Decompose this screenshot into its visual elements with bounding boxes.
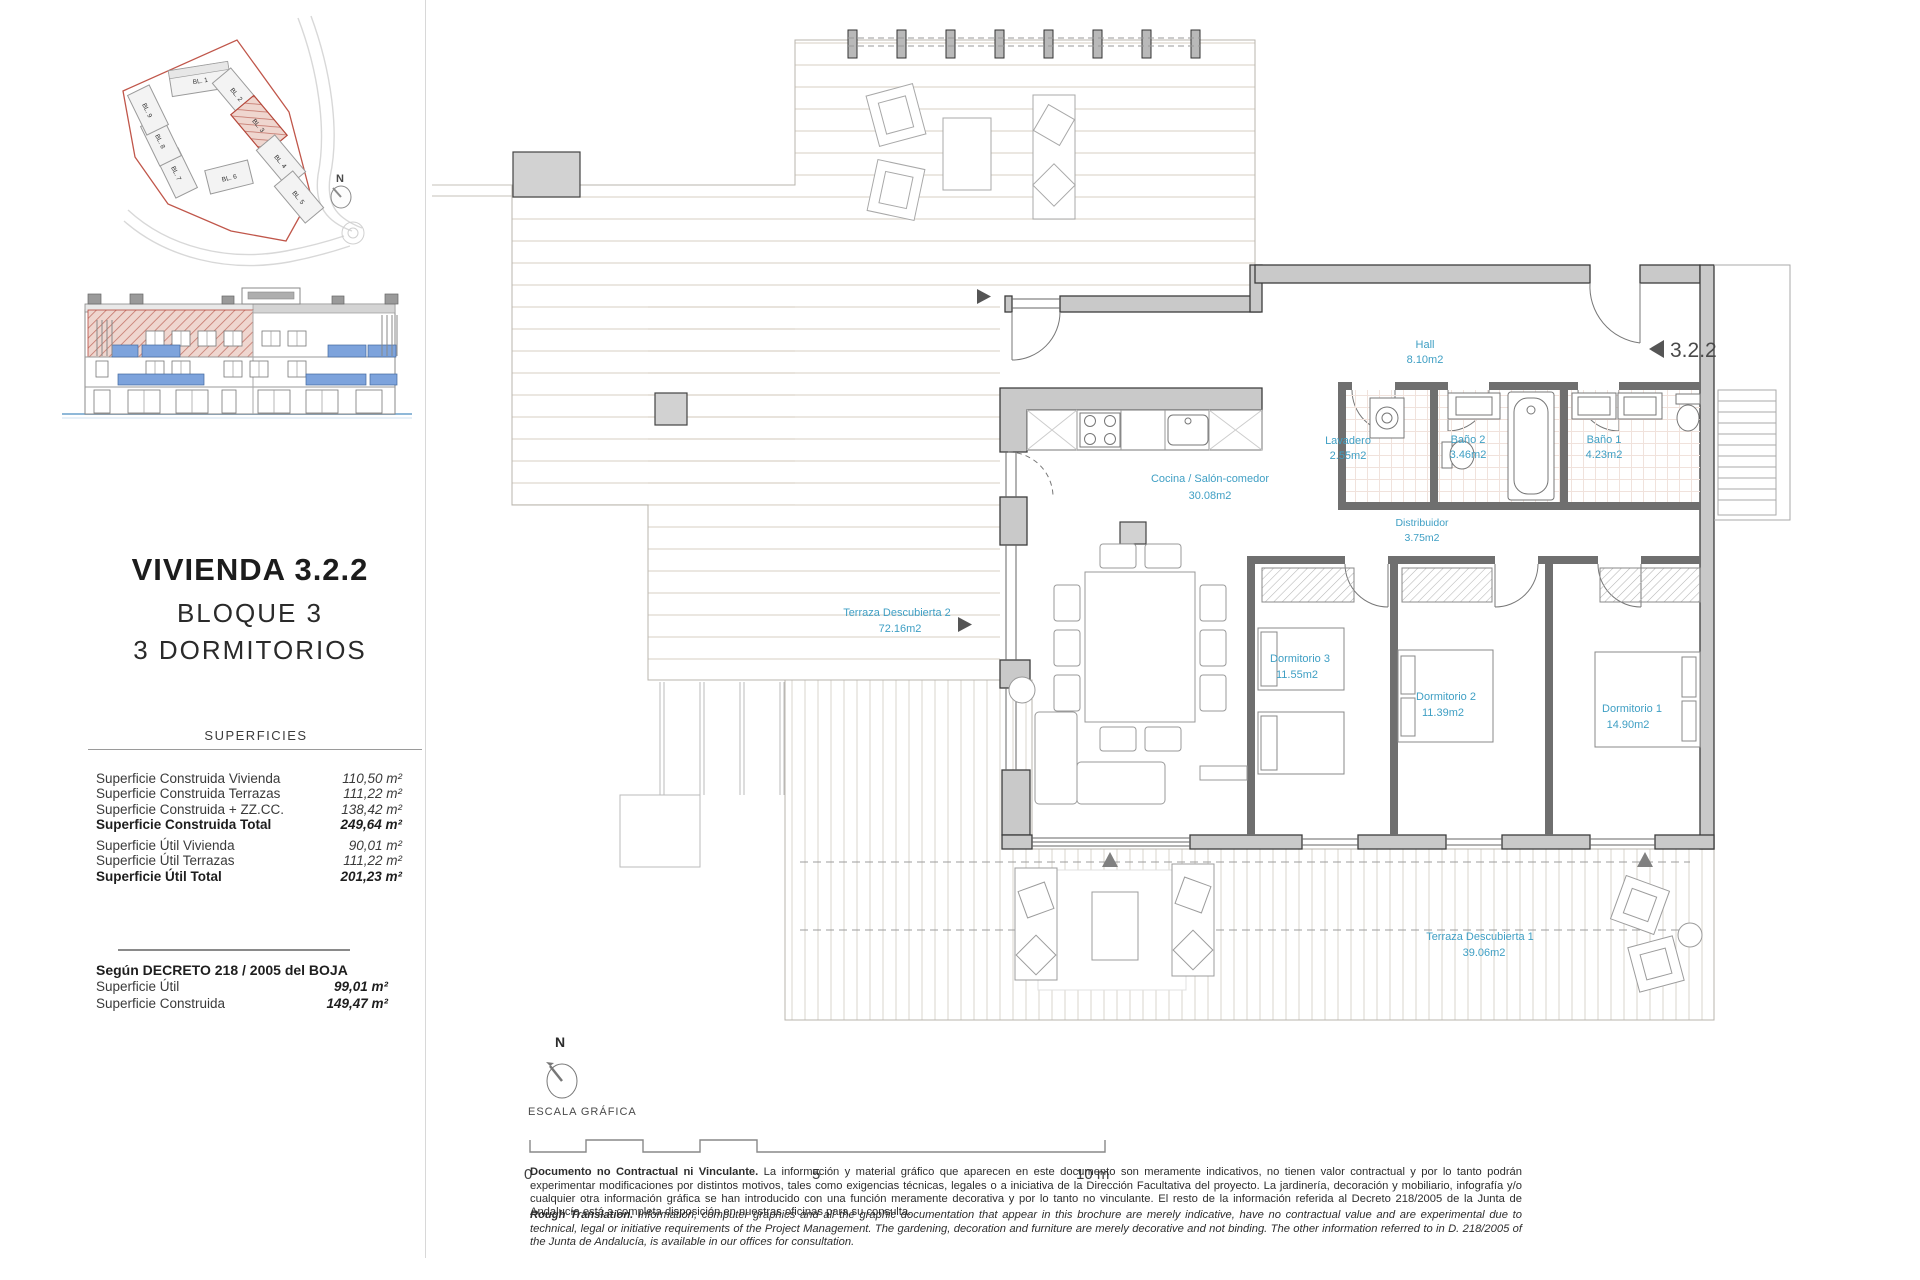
- superficies-table: Superficie Construida Vivienda 110,50 m²…: [96, 771, 402, 884]
- scale-bar: [530, 1140, 1105, 1152]
- living-furniture: [1009, 544, 1247, 804]
- coffee-table: [1092, 892, 1138, 960]
- svg-text:Dormitorio 2: Dormitorio 2: [1416, 691, 1476, 703]
- svg-text:Baño 1: Baño 1: [1587, 434, 1622, 446]
- scale-compass-icon: [546, 1062, 577, 1098]
- sofa: [1077, 762, 1165, 804]
- superficies-heading: SUPERFICIES: [90, 728, 422, 743]
- north-label: N: [555, 1034, 565, 1050]
- bedroom-furniture: [1258, 568, 1700, 774]
- svg-text:8.10m2: 8.10m2: [1407, 354, 1444, 366]
- svg-text:11.55m2: 11.55m2: [1276, 669, 1318, 681]
- table-row: Superficie Útil Terrazas 111,22 m²: [96, 853, 402, 868]
- block-subtitle: BLOQUE 3: [70, 598, 430, 629]
- stair-landing: [1714, 265, 1790, 520]
- trellis: [620, 682, 784, 867]
- building-elevation: [62, 288, 412, 418]
- svg-text:3.46m2: 3.46m2: [1450, 449, 1487, 461]
- svg-text:Baño 2: Baño 2: [1451, 434, 1486, 446]
- room-label-distribuidor: Distribuidor 3.75m2: [1395, 517, 1449, 544]
- dining-table: [1085, 572, 1195, 722]
- svg-text:72.16m2: 72.16m2: [879, 623, 922, 635]
- room-label-hall: Hall 8.10m2: [1407, 339, 1444, 366]
- outdoor-table: [943, 118, 991, 190]
- svg-text:30.08m2: 30.08m2: [1189, 490, 1232, 502]
- divider-rule: [88, 749, 422, 750]
- title-block: VIVIENDA 3.2.2 BLOQUE 3 3 DORMITORIOS: [70, 552, 430, 666]
- decreto-heading: Según DECRETO 218 / 2005 del BOJA: [96, 962, 388, 979]
- rooms-subtitle: 3 DORMITORIOS: [70, 635, 430, 666]
- table-row: Superficie Construida + ZZ.CC. 138,42 m²: [96, 802, 402, 817]
- svg-text:Terraza Descubierta 1: Terraza Descubierta 1: [1426, 931, 1534, 943]
- divider-rule: [118, 949, 350, 951]
- room-label-cocina-salon: Cocina / Salón-comedor 30.08m2: [1151, 473, 1269, 502]
- svg-text:Distribuidor: Distribuidor: [1395, 517, 1449, 529]
- tv-unit: [1200, 766, 1247, 780]
- site-block-9: BL. 9: [128, 85, 169, 135]
- table-row: Superficie Construida Vivienda 110,50 m²: [96, 771, 402, 786]
- kitchen-fixtures: [1027, 410, 1262, 450]
- scale-label: ESCALA GRÁFICA: [528, 1106, 637, 1118]
- site-plan: BL. 1 BL. 2 BL. 3 BL. 4 BL. 5 BL. 6: [123, 16, 364, 266]
- svg-text:Terraza Descubierta 2: Terraza Descubierta 2: [843, 607, 951, 619]
- table-row: Superficie Construida 149,47 m²: [96, 996, 388, 1013]
- svg-text:Lavadero: Lavadero: [1325, 435, 1371, 447]
- unit-marker-arrow-icon: [1649, 340, 1664, 358]
- svg-text:2.55m2: 2.55m2: [1330, 450, 1367, 462]
- disclaimer-english: Rough Translation. Information, computer…: [530, 1209, 1522, 1249]
- decreto-block: Según DECRETO 218 / 2005 del BOJA Superf…: [96, 962, 388, 1012]
- pillar: [1120, 522, 1146, 544]
- pillar: [655, 393, 687, 425]
- floor-plan: 3.2.2 Hall 8.10m2 Lavadero 2.55m2 Baño 2…: [432, 30, 1790, 1020]
- site-north-compass-icon: N: [331, 173, 351, 208]
- svg-text:Cocina / Salón-comedor: Cocina / Salón-comedor: [1151, 473, 1269, 485]
- roundabout: [342, 222, 364, 244]
- table-row: Superficie Construida Terrazas 111,22 m²: [96, 786, 402, 801]
- svg-text:Dormitorio 3: Dormitorio 3: [1270, 653, 1330, 665]
- sofa: [1035, 712, 1077, 804]
- svg-text:4.23m2: 4.23m2: [1586, 449, 1623, 461]
- svg-text:Dormitorio 1: Dormitorio 1: [1602, 703, 1662, 715]
- unit-marker-label: 3.2.2: [1670, 339, 1717, 362]
- svg-text:Hall: Hall: [1416, 339, 1435, 351]
- table-row-total: Superficie Útil Total 201,23 m²: [96, 869, 402, 884]
- page-title: VIVIENDA 3.2.2: [70, 552, 430, 588]
- table-row-total: Superficie Construida Total 249,64 m²: [96, 817, 402, 832]
- pillar: [513, 152, 580, 197]
- brochure-page: BL. 1 BL. 2 BL. 3 BL. 4 BL. 5 BL. 6: [0, 0, 1920, 1280]
- svg-text:11.39m2: 11.39m2: [1422, 707, 1464, 719]
- svg-text:39.06m2: 39.06m2: [1463, 947, 1506, 959]
- svg-text:3.75m2: 3.75m2: [1404, 532, 1439, 544]
- svg-text:N: N: [336, 173, 344, 185]
- site-block-6: BL. 6: [205, 160, 253, 194]
- table-row: Superficie Útil 99,01 m²: [96, 979, 388, 996]
- table-row: Superficie Útil Vivienda 90,01 m²: [96, 838, 402, 853]
- svg-text:14.90m2: 14.90m2: [1607, 719, 1650, 731]
- side-table: [1009, 677, 1035, 703]
